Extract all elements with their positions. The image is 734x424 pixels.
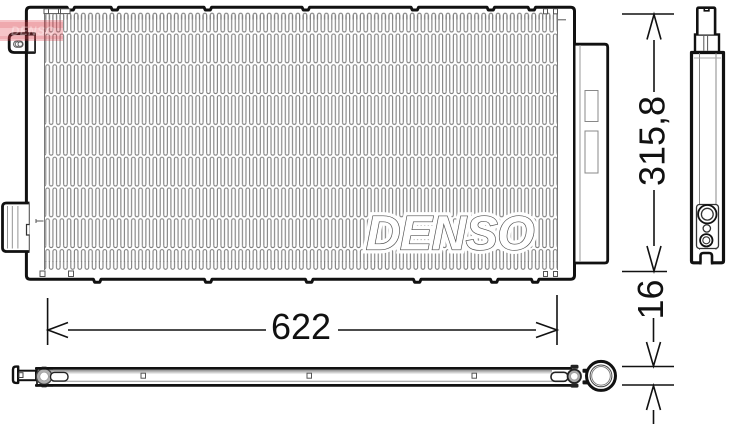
svg-text:315,8: 315,8 xyxy=(632,96,673,186)
svg-text:16: 16 xyxy=(630,279,671,319)
svg-text:622: 622 xyxy=(271,306,331,347)
svg-text:DENSO: DENSO xyxy=(11,26,55,38)
svg-text:DENSO: DENSO xyxy=(366,208,534,261)
